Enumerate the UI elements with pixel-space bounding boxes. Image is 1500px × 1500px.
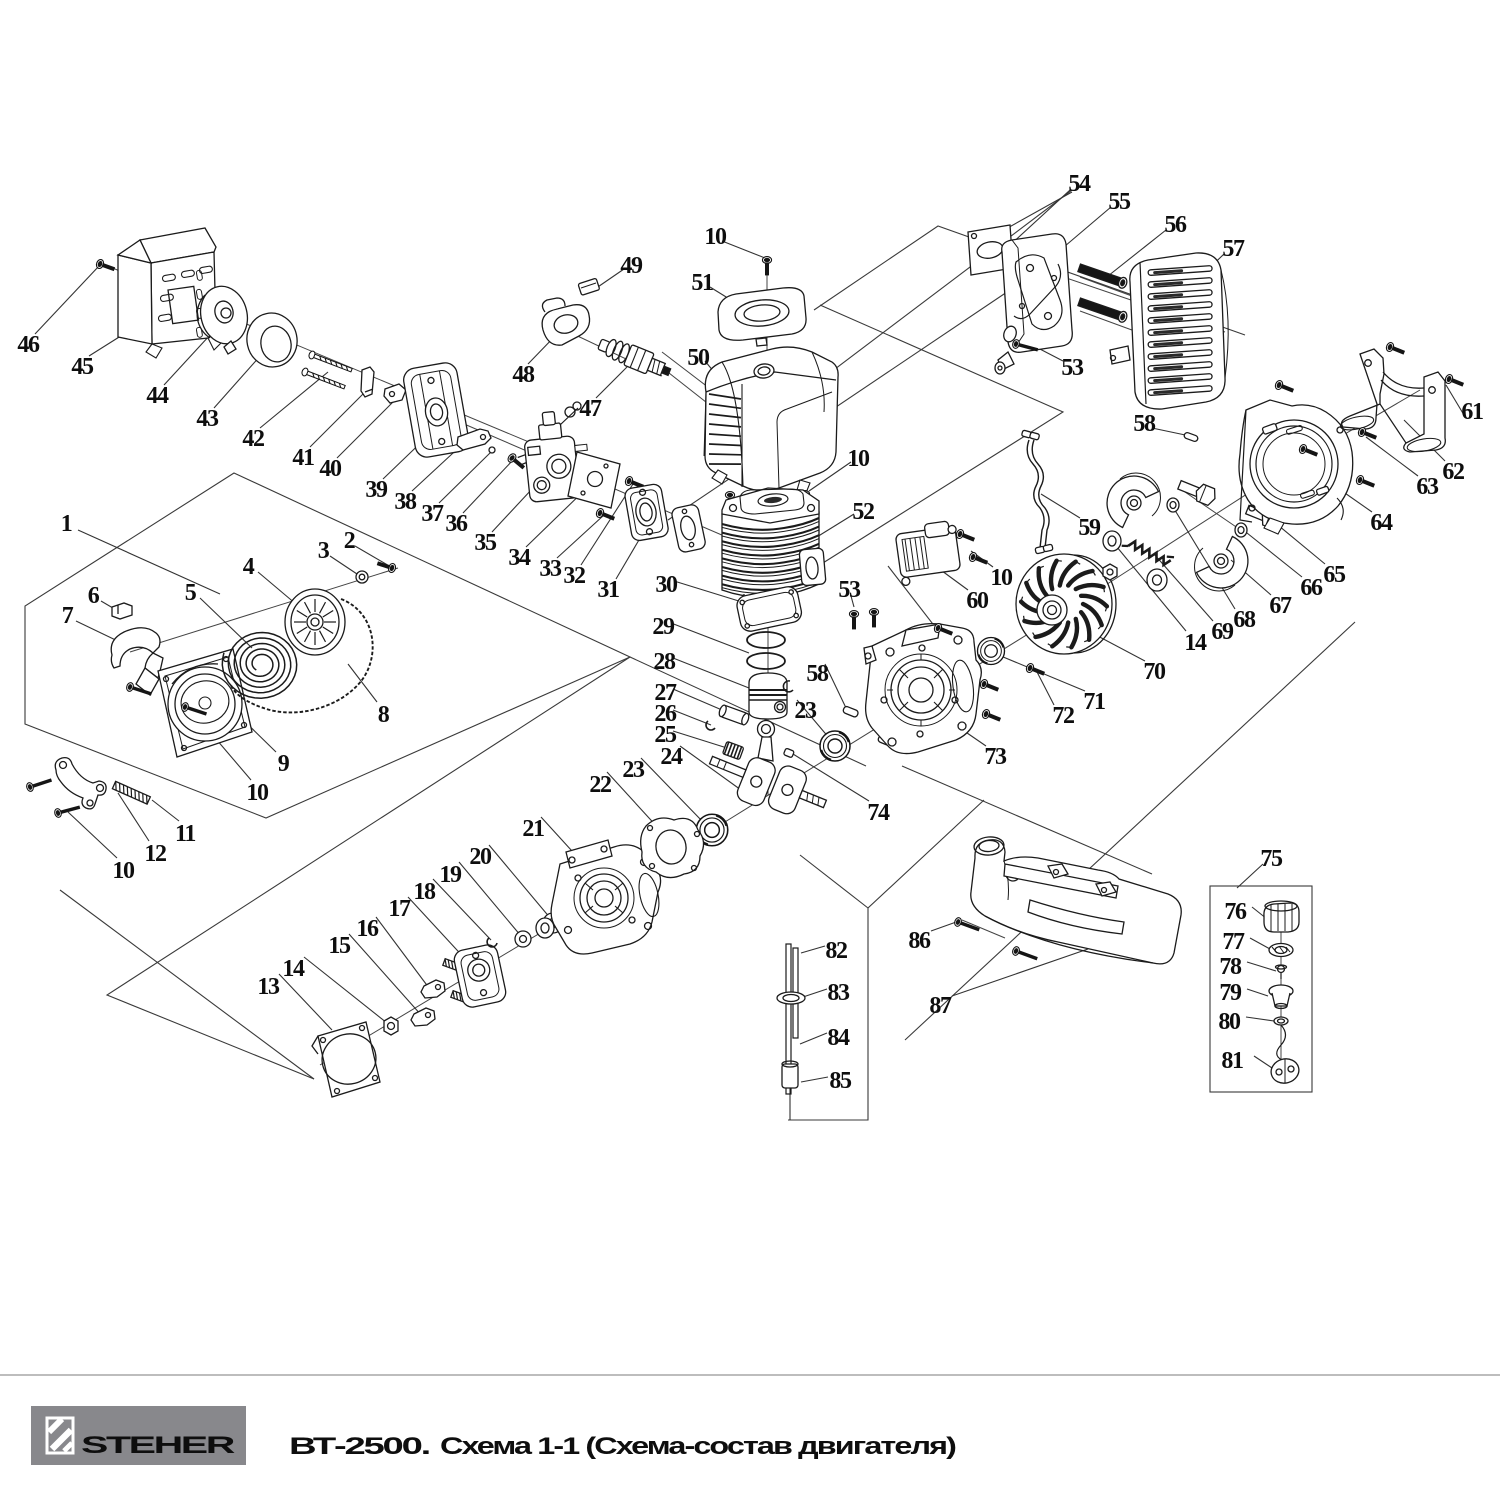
svg-text:28: 28 [653, 649, 676, 675]
svg-text:10: 10 [990, 565, 1013, 591]
svg-text:46: 46 [17, 332, 40, 358]
svg-text:31: 31 [597, 577, 619, 603]
svg-text:56: 56 [1164, 212, 1187, 238]
svg-text:53: 53 [1061, 355, 1084, 381]
svg-text:8: 8 [378, 702, 390, 728]
svg-text:32: 32 [563, 563, 585, 589]
svg-text:48: 48 [512, 362, 535, 388]
svg-text:34: 34 [508, 545, 531, 571]
svg-text:58: 58 [1133, 411, 1156, 437]
svg-text:65: 65 [1323, 562, 1346, 588]
svg-text:14: 14 [1184, 630, 1207, 656]
svg-text:STEHER: STEHER [81, 1432, 235, 1459]
svg-text:1: 1 [61, 511, 72, 537]
svg-text:47: 47 [579, 396, 602, 422]
svg-text:Схема 1-1 (Схема-состав двигат: Схема 1-1 (Схема-состав двигателя) [440, 1433, 956, 1460]
svg-text:82: 82 [825, 938, 847, 964]
svg-text:16: 16 [356, 916, 379, 942]
svg-text:10: 10 [112, 858, 135, 884]
svg-text:40: 40 [319, 456, 342, 482]
svg-text:17: 17 [388, 896, 411, 922]
svg-text:76: 76 [1224, 899, 1247, 925]
svg-text:43: 43 [196, 406, 219, 432]
svg-text:2: 2 [344, 528, 355, 554]
svg-text:10: 10 [704, 224, 727, 250]
svg-text:66: 66 [1300, 575, 1323, 601]
svg-text:51: 51 [691, 270, 713, 296]
svg-text:23: 23 [622, 757, 645, 783]
svg-text:ВТ-2500.: ВТ-2500. [289, 1433, 430, 1460]
svg-text:23: 23 [794, 698, 817, 724]
svg-text:10: 10 [847, 446, 870, 472]
svg-text:35: 35 [474, 530, 497, 556]
svg-text:52: 52 [852, 499, 874, 525]
svg-text:22: 22 [589, 772, 611, 798]
svg-text:13: 13 [257, 974, 280, 1000]
svg-text:79: 79 [1219, 980, 1242, 1006]
svg-text:64: 64 [1370, 510, 1393, 536]
svg-text:57: 57 [1222, 236, 1245, 262]
svg-text:38: 38 [394, 489, 417, 515]
svg-text:50: 50 [687, 345, 710, 371]
svg-text:14: 14 [282, 956, 305, 982]
svg-text:30: 30 [655, 572, 678, 598]
svg-text:58: 58 [806, 661, 829, 687]
svg-text:54: 54 [1068, 171, 1091, 197]
svg-text:9: 9 [278, 751, 290, 777]
svg-text:6: 6 [88, 583, 100, 609]
svg-text:80: 80 [1218, 1009, 1241, 1035]
svg-text:49: 49 [620, 253, 643, 279]
svg-text:60: 60 [966, 588, 989, 614]
svg-text:10: 10 [246, 780, 269, 806]
svg-text:73: 73 [984, 744, 1007, 770]
svg-text:41: 41 [292, 445, 314, 471]
svg-text:7: 7 [62, 603, 74, 629]
svg-text:4: 4 [243, 554, 255, 580]
svg-text:36: 36 [445, 511, 468, 537]
svg-text:29: 29 [652, 614, 675, 640]
svg-text:74: 74 [867, 800, 890, 826]
svg-text:63: 63 [1416, 474, 1439, 500]
svg-text:19: 19 [439, 862, 462, 888]
svg-text:21: 21 [522, 816, 544, 842]
svg-text:53: 53 [838, 577, 861, 603]
svg-text:71: 71 [1083, 689, 1105, 715]
svg-text:27: 27 [654, 680, 677, 706]
svg-text:39: 39 [365, 477, 388, 503]
svg-text:78: 78 [1219, 954, 1242, 980]
svg-text:59: 59 [1078, 515, 1101, 541]
svg-text:37: 37 [421, 501, 444, 527]
svg-text:68: 68 [1233, 607, 1256, 633]
svg-text:18: 18 [413, 879, 436, 905]
svg-text:87: 87 [929, 993, 952, 1019]
svg-text:75: 75 [1260, 846, 1283, 872]
svg-text:20: 20 [469, 844, 492, 870]
svg-text:77: 77 [1222, 929, 1245, 955]
svg-text:45: 45 [71, 354, 94, 380]
svg-text:86: 86 [908, 928, 931, 954]
svg-text:69: 69 [1211, 619, 1234, 645]
svg-text:72: 72 [1052, 703, 1074, 729]
svg-text:15: 15 [328, 933, 351, 959]
svg-text:83: 83 [827, 980, 850, 1006]
svg-text:85: 85 [829, 1068, 852, 1094]
svg-text:44: 44 [146, 383, 169, 409]
svg-text:12: 12 [144, 841, 166, 867]
svg-text:70: 70 [1143, 659, 1166, 685]
svg-text:84: 84 [827, 1025, 850, 1051]
svg-text:11: 11 [175, 821, 195, 847]
svg-text:55: 55 [1108, 189, 1131, 215]
svg-text:61: 61 [1461, 399, 1483, 425]
svg-text:3: 3 [318, 538, 330, 564]
svg-text:42: 42 [242, 426, 264, 452]
svg-text:81: 81 [1221, 1048, 1243, 1074]
svg-text:33: 33 [539, 556, 562, 582]
svg-text:62: 62 [1442, 459, 1464, 485]
svg-text:5: 5 [185, 580, 197, 606]
svg-text:67: 67 [1269, 593, 1292, 619]
